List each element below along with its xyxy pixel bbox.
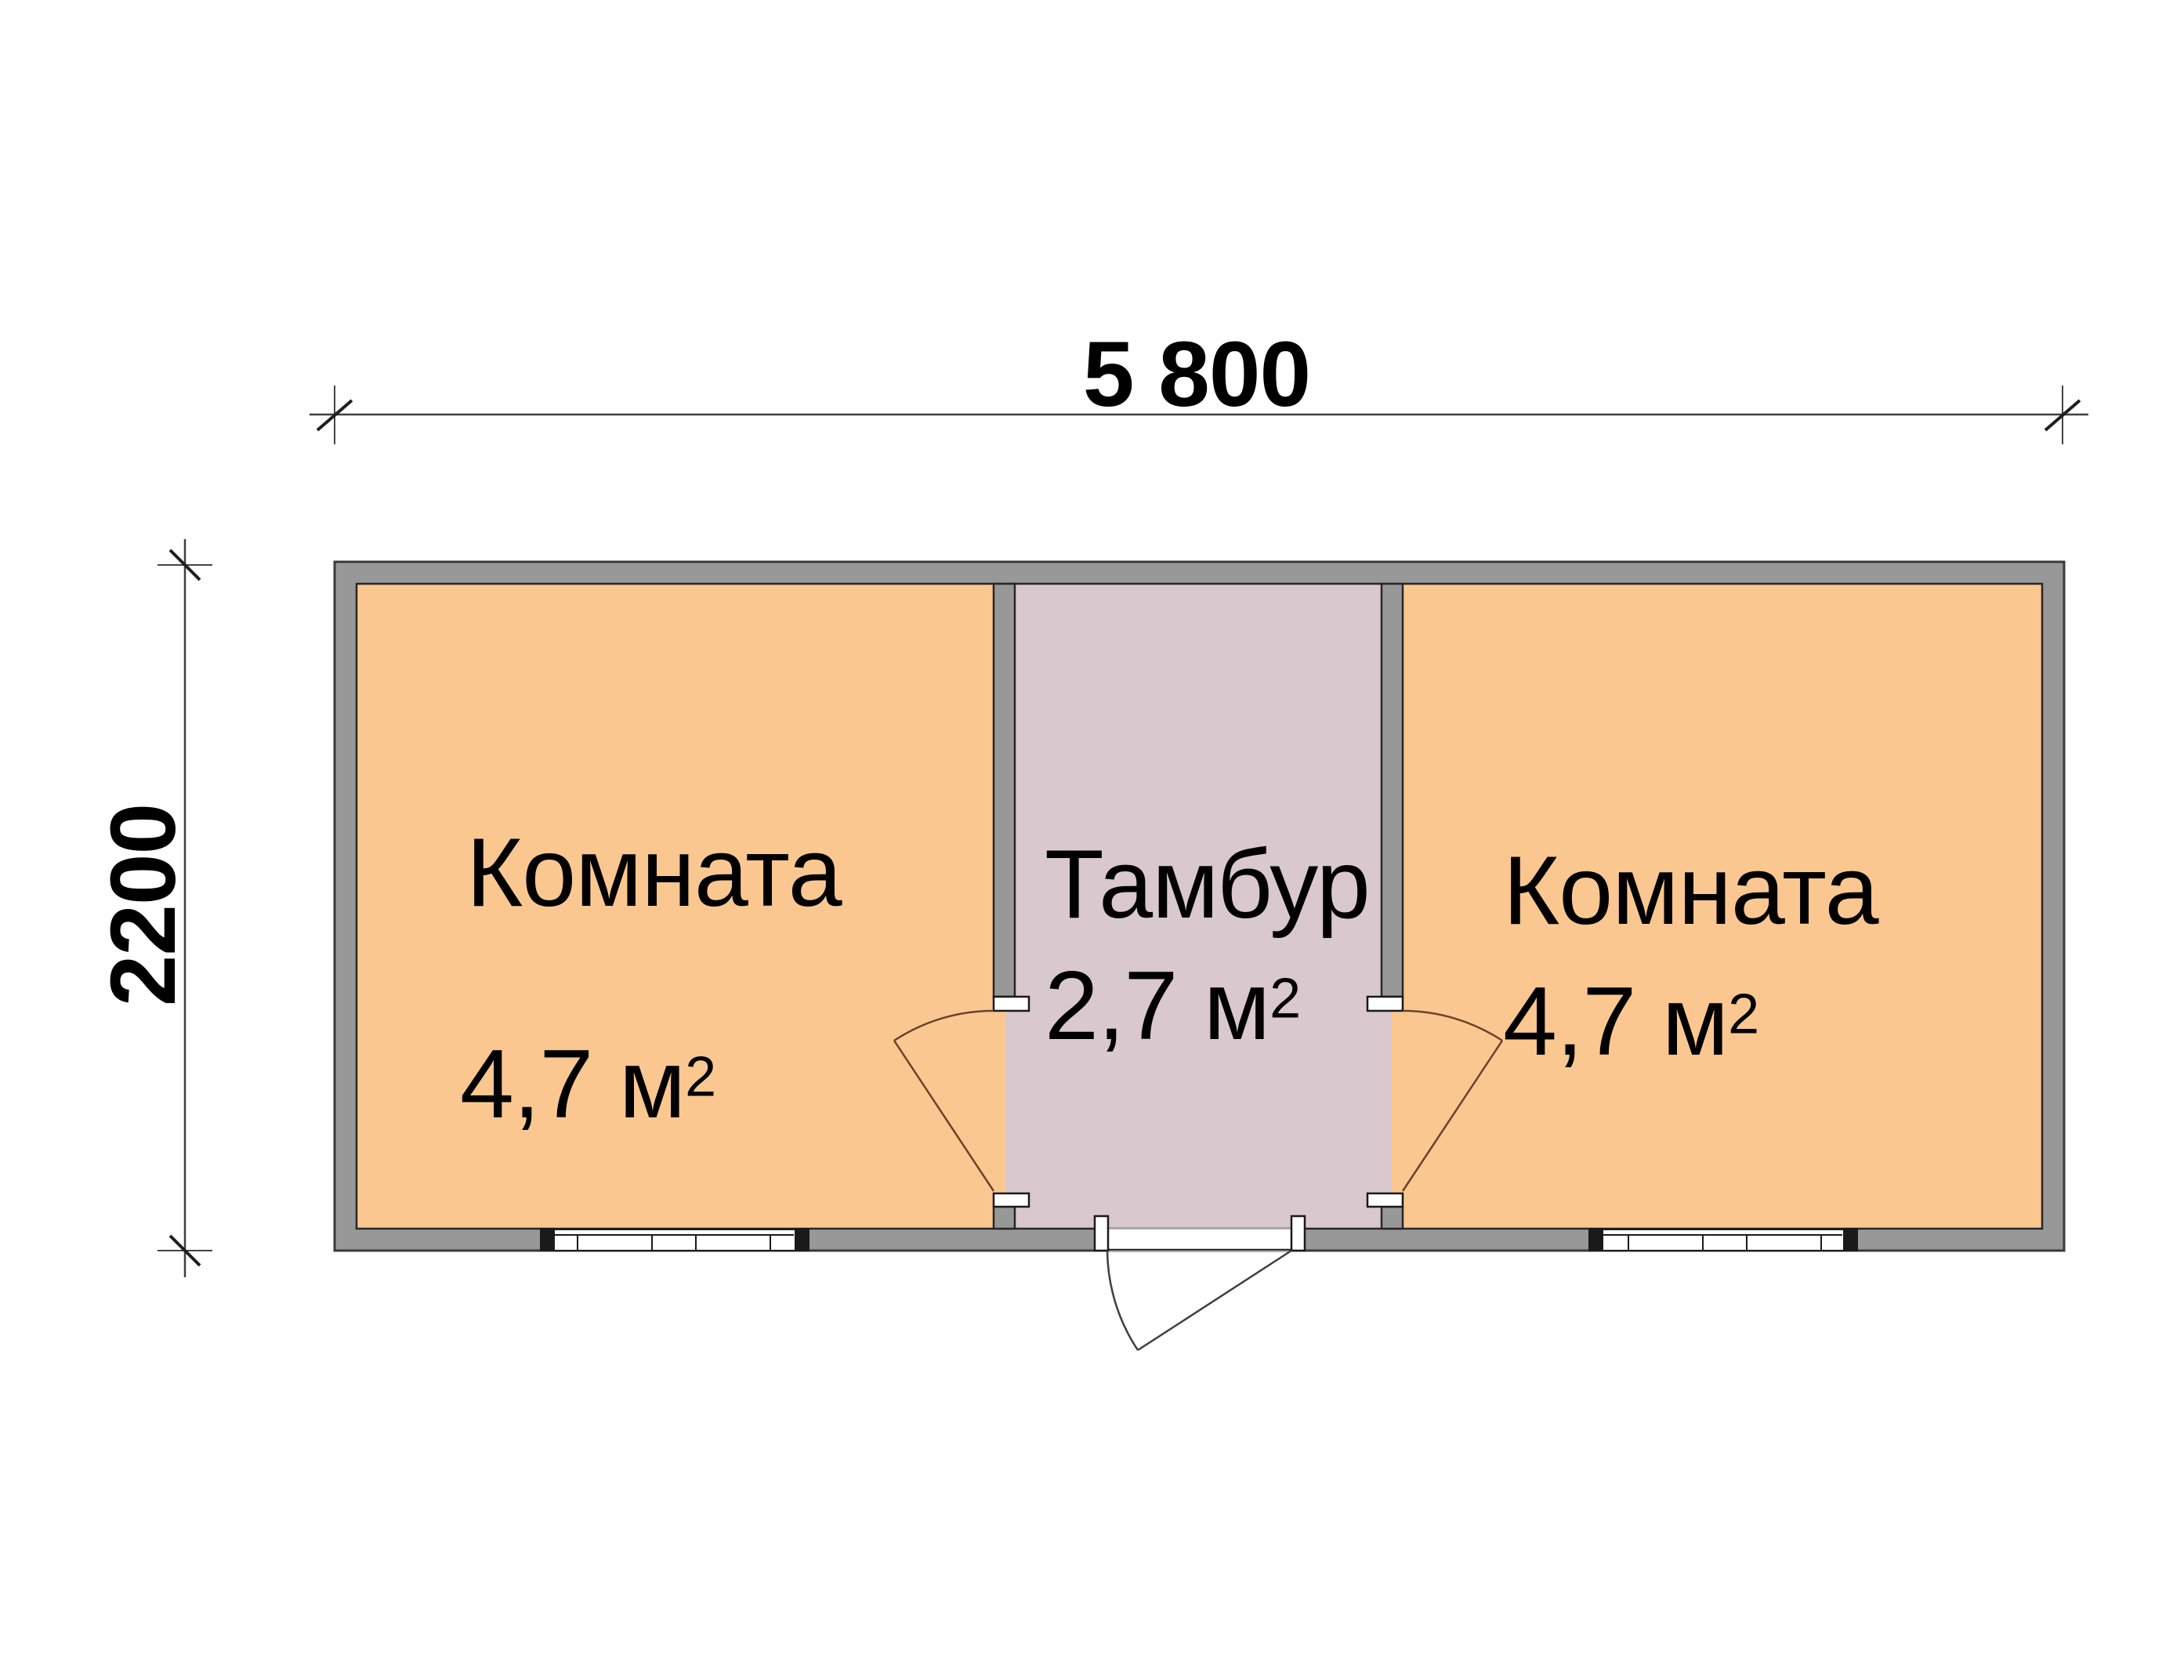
entrance-right-jamb: [1291, 1216, 1305, 1251]
entrance-door-leaf: [1138, 1251, 1291, 1350]
room-right-area: 4,7 м2: [1503, 973, 1759, 1070]
room-right-area-value: 4,7 м: [1503, 968, 1728, 1076]
left-door-top-jamb: [994, 997, 1029, 1011]
room-right-area-sup: 2: [1728, 983, 1759, 1046]
dimension-width-label: 5 800: [1083, 328, 1310, 421]
right-door-top-jamb: [1367, 997, 1403, 1011]
window-frame: [1589, 1229, 1857, 1251]
window-left: [541, 1228, 809, 1251]
interior-wall-right-stub: [1382, 1207, 1403, 1229]
vestibule-area-value: 2,7 м: [1045, 952, 1269, 1060]
interior-wall-left-upper: [994, 584, 1015, 997]
window-end-cap: [795, 1228, 809, 1251]
dimension-height-label: 2200: [97, 804, 190, 1007]
interior-wall-left-stub: [994, 1207, 1015, 1229]
entrance-door-swing-arc: [1107, 1251, 1138, 1350]
right-door-bottom-jamb: [1367, 1193, 1403, 1207]
interior-wall-right-upper: [1382, 584, 1403, 997]
left-door-bottom-jamb: [994, 1193, 1029, 1207]
window-end-cap: [541, 1228, 555, 1251]
room-left-name: Комната: [466, 824, 842, 921]
room-right-name: Комната: [1503, 842, 1878, 940]
entrance-opening-gap: [1107, 1228, 1291, 1251]
room-left-area-value: 4,7 м: [460, 1030, 685, 1139]
window-end-cap: [1589, 1228, 1603, 1251]
vestibule-area: 2,7 м2: [1045, 958, 1301, 1055]
window-frame: [541, 1229, 809, 1251]
entrance-opening: [1107, 1228, 1291, 1251]
room-left-area: 4,7 м2: [460, 1036, 716, 1133]
vestibule-name: Тамбур: [1045, 836, 1370, 933]
room-left-area-sup: 2: [685, 1046, 716, 1109]
floor-plan-page: 5 800 2200 Комната 4,7 м2 Тамбур 2,7 м2 …: [0, 0, 2184, 1680]
entrance-left-jamb: [1095, 1216, 1108, 1251]
window-right: [1589, 1228, 1857, 1251]
vestibule-area-sup: 2: [1269, 968, 1301, 1030]
window-end-cap: [1843, 1228, 1857, 1251]
